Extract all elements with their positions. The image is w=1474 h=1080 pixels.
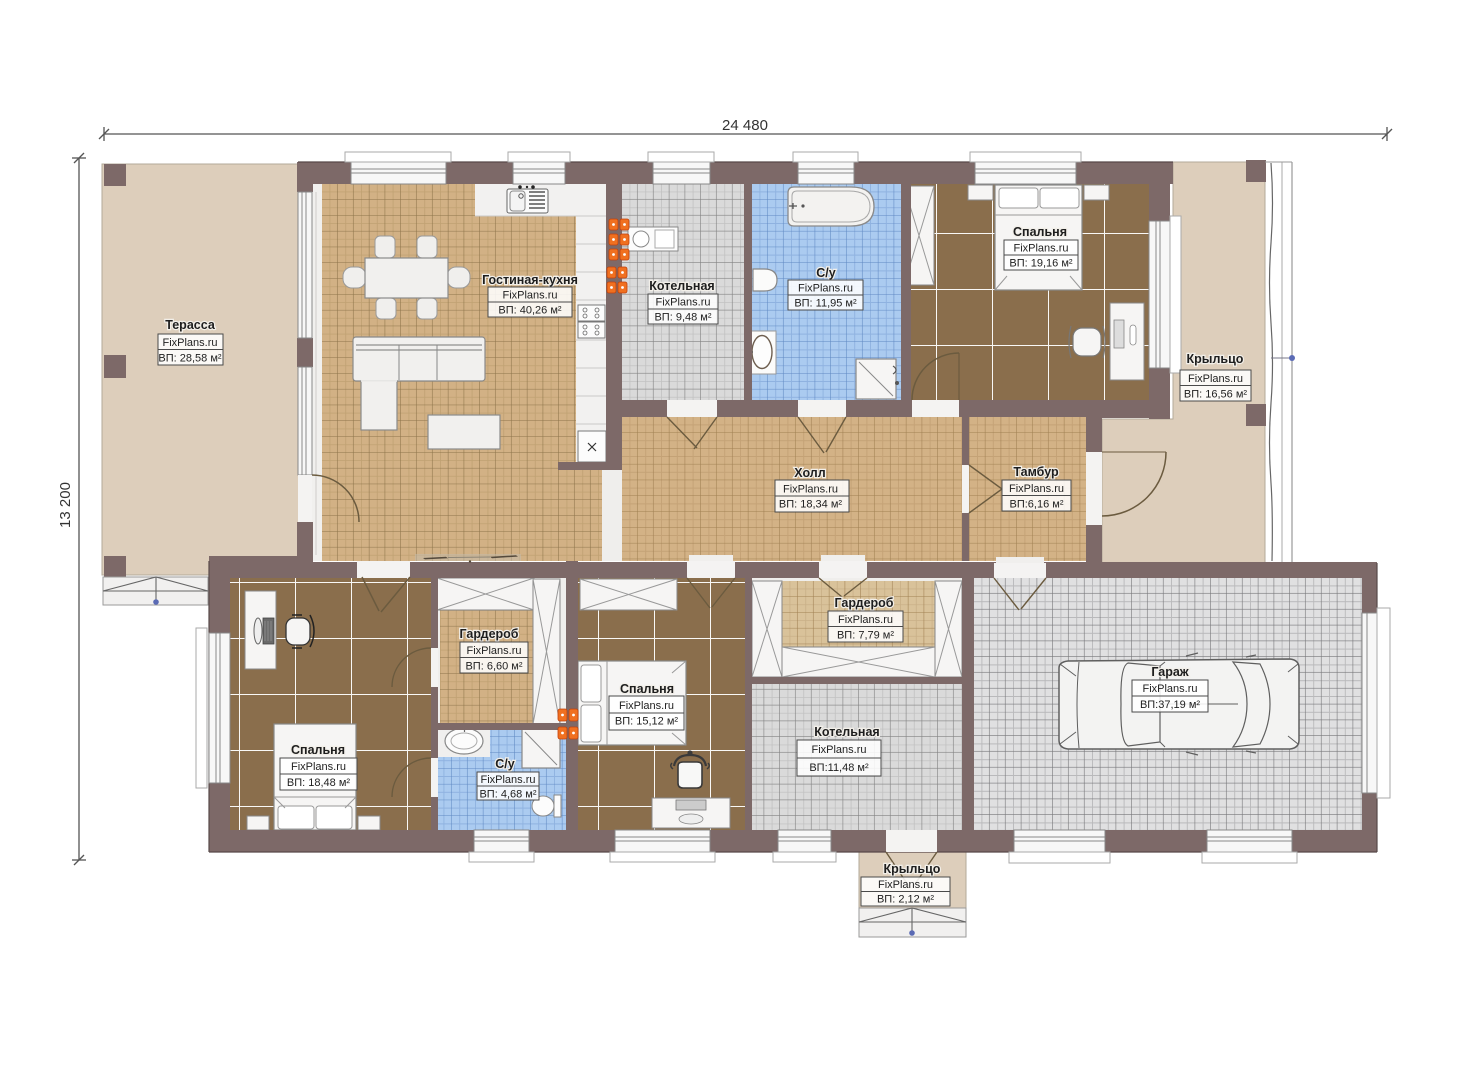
svg-text:FixPlans.ru: FixPlans.ru [466,645,521,657]
svg-text:ВП: 9,48 м²: ВП: 9,48 м² [654,312,711,324]
svg-text:FixPlans.ru: FixPlans.ru [783,484,838,496]
svg-text:ВП:11,48 м²: ВП:11,48 м² [809,762,869,774]
svg-text:FixPlans.ru: FixPlans.ru [619,700,674,712]
svg-text:Котельная: Котельная [814,725,879,739]
svg-text:Терасса: Терасса [165,318,216,332]
svg-text:ВП: 4,68 м²: ВП: 4,68 м² [479,789,536,801]
svg-text:ВП: 18,34 м²: ВП: 18,34 м² [779,499,843,511]
svg-text:Холл: Холл [794,466,825,480]
svg-text:ВП:37,19 м²: ВП:37,19 м² [1140,699,1200,711]
svg-text:FixPlans.ru: FixPlans.ru [838,614,893,626]
svg-text:С/у: С/у [816,266,836,280]
svg-text:FixPlans.ru: FixPlans.ru [655,297,710,309]
svg-text:ВП: 11,95 м²: ВП: 11,95 м² [794,298,857,310]
svg-text:FixPlans.ru: FixPlans.ru [811,744,866,756]
svg-text:FixPlans.ru: FixPlans.ru [162,337,217,349]
svg-text:FixPlans.ru: FixPlans.ru [798,283,853,295]
svg-text:FixPlans.ru: FixPlans.ru [878,879,933,891]
svg-text:ВП: 28,58 м²: ВП: 28,58 м² [158,353,222,365]
svg-text:ВП: 7,79 м²: ВП: 7,79 м² [837,630,894,642]
svg-text:Гостиная-кухня: Гостиная-кухня [482,273,578,287]
svg-text:FixPlans.ru: FixPlans.ru [1142,683,1197,695]
svg-text:Гардероб: Гардероб [459,627,518,641]
svg-text:С/у: С/у [495,757,515,771]
svg-text:FixPlans.ru: FixPlans.ru [291,761,346,773]
svg-text:13 200: 13 200 [57,482,74,528]
svg-text:Крыльцо: Крыльцо [1187,352,1244,366]
svg-text:Спальня: Спальня [620,682,674,696]
svg-text:ВП: 6,60 м²: ВП: 6,60 м² [465,661,522,673]
svg-text:Котельная: Котельная [649,279,714,293]
svg-text:ВП: 16,56 м²: ВП: 16,56 м² [1184,389,1248,401]
svg-text:ВП: 15,12 м²: ВП: 15,12 м² [615,716,679,728]
svg-text:ВП: 18,48 м²: ВП: 18,48 м² [287,777,351,789]
svg-text:FixPlans.ru: FixPlans.ru [1013,243,1068,255]
svg-text:FixPlans.ru: FixPlans.ru [480,774,535,786]
svg-text:Тамбур: Тамбур [1013,465,1059,479]
svg-text:Спальня: Спальня [291,743,345,757]
svg-text:FixPlans.ru: FixPlans.ru [502,290,557,302]
svg-text:ВП:6,16 м²: ВП:6,16 м² [1010,499,1064,511]
svg-text:24 480: 24 480 [722,117,768,134]
svg-text:ВП: 2,12 м²: ВП: 2,12 м² [877,894,934,906]
svg-text:Гардероб: Гардероб [834,596,893,610]
svg-text:ВП: 19,16 м²: ВП: 19,16 м² [1009,258,1073,270]
svg-text:FixPlans.ru: FixPlans.ru [1009,483,1064,495]
svg-text:FixPlans.ru: FixPlans.ru [1188,373,1243,385]
svg-text:Спальня: Спальня [1013,225,1067,239]
svg-text:Крыльцо: Крыльцо [884,862,941,876]
svg-text:ВП: 40,26 м²: ВП: 40,26 м² [498,305,562,317]
svg-text:Гараж: Гараж [1151,665,1188,679]
